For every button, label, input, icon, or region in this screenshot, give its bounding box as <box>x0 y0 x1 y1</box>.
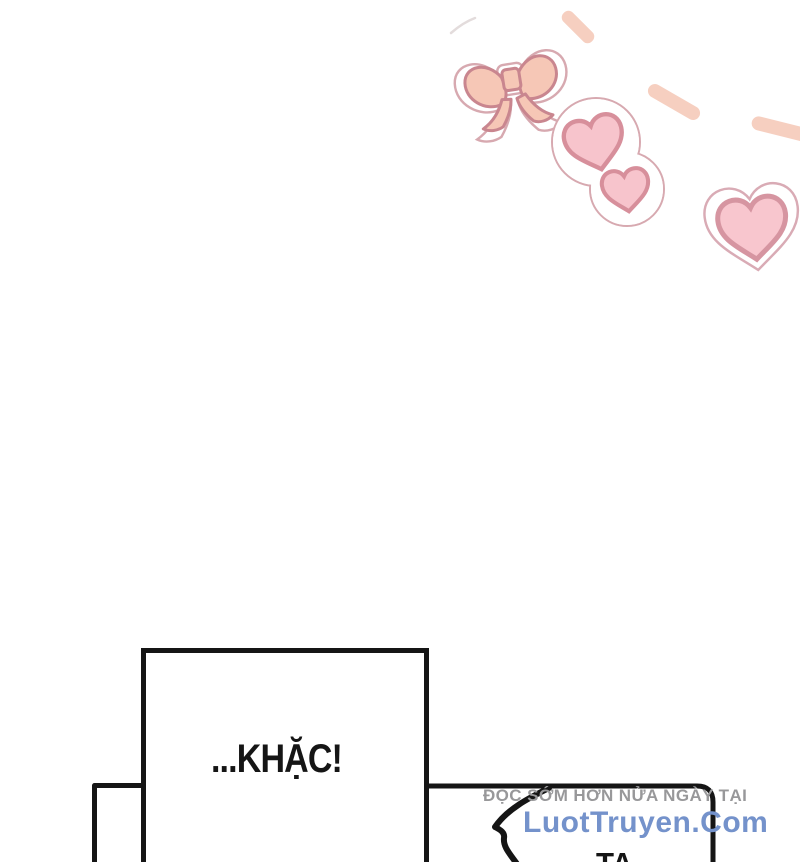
sfx-text: ...KHẶC! <box>167 737 403 781</box>
faint-sticker-edge <box>451 18 475 33</box>
sfx-panel: ...KHẶC! <box>141 648 429 862</box>
lower-right-panel-border <box>429 786 713 862</box>
speech-bubble-text: TA <box>596 848 633 862</box>
comic-page: ...KHẶC! TA ĐỌC SỚM HƠN NỬA NGÀY TẠI Luo… <box>0 0 800 862</box>
speech-bubble-tail <box>495 788 549 862</box>
double-heart-sticker-icon <box>552 98 664 226</box>
large-heart-sticker-icon <box>702 180 800 275</box>
lower-left-panel-border <box>95 786 142 862</box>
